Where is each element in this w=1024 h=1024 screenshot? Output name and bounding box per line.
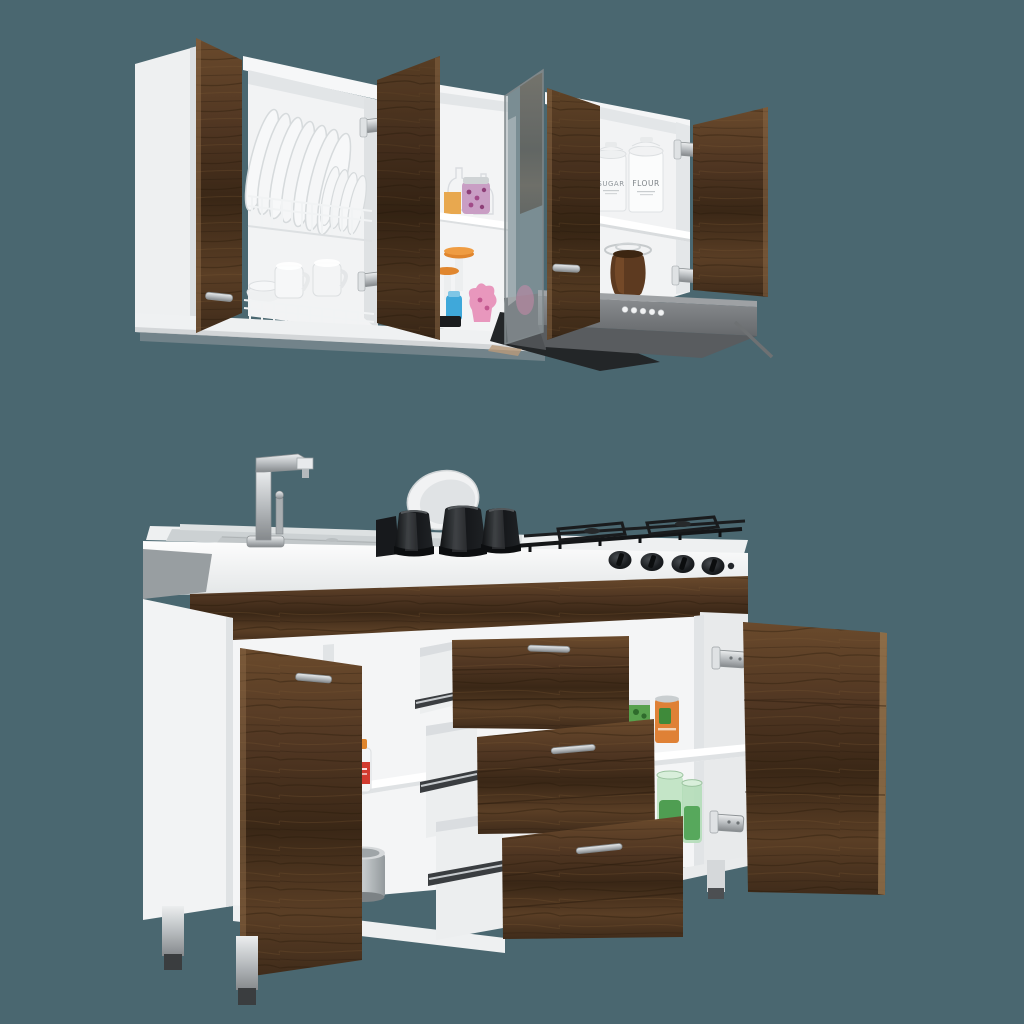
door-edge-highlight [547,88,552,340]
sugar-label: SUGAR [597,180,624,188]
pot [439,506,487,558]
faucet-spout-tip [297,458,313,469]
door-edge-highlight [196,38,201,333]
sugar-canister: SUGAR [596,142,626,211]
knob [702,557,725,575]
wall-door-middle-handle [553,264,580,272]
door-edge-highlight [763,107,768,297]
wall-unit-left-side-panel [135,46,198,332]
faucet-nozzle [302,469,309,478]
flour-canister: FLOUR [629,137,663,212]
glass-reflection-streak [508,116,516,306]
green-can [628,700,650,723]
door-edge-highlight [435,56,440,340]
product-image-kitchen-cabinet-set: SUGAR FLOUR [0,0,1024,1024]
leg [236,936,258,1005]
orange-can [655,696,679,744]
drawer-1-handle [528,645,570,652]
base-door-left-open [240,648,362,978]
glass-reflection-pink [516,285,534,315]
scene-canvas: SUGAR FLOUR [0,0,1024,1024]
wall-door-left-closed [196,38,242,333]
wall-door-open-middle-right [547,88,600,340]
mixer-lever [276,498,283,534]
leg [707,860,725,899]
wall-glass-door [505,70,543,344]
orange-box [444,192,461,214]
leg [162,906,184,970]
drawer-2 [477,719,655,834]
base-left-side-panel [143,599,233,920]
base-left-side-panel-edge [226,617,233,907]
igniter-button [728,563,734,569]
knob [609,551,632,569]
drawer-1 [452,636,629,730]
pot [481,508,521,553]
door-shadow-overlay [547,88,600,340]
pantry-section-interior [435,92,508,338]
knob [641,553,664,571]
dish-rack-section-interior [239,70,378,334]
pot [394,510,434,556]
flour-label: FLOUR [632,179,659,188]
door-shadow-overlay [377,56,440,340]
glass-reflection-wood [520,72,543,214]
candy-jar [462,177,490,214]
deck-hole-cap [326,538,338,542]
counter-left-end-cap [143,549,212,599]
door-edge-highlight [240,648,246,978]
knob [672,555,695,573]
